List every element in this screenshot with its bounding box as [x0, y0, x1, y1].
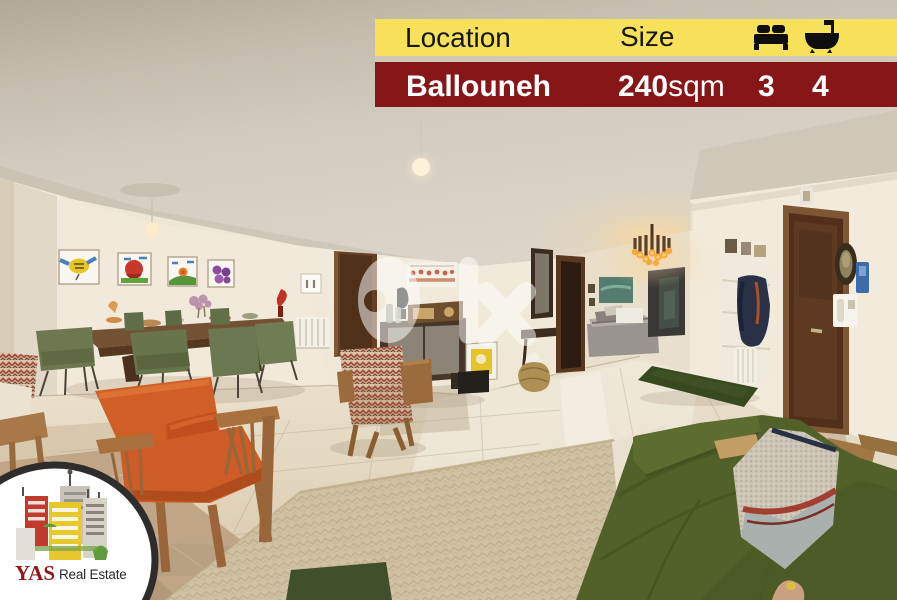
svg-text:YAS: YAS	[15, 561, 55, 585]
svg-text:3: 3	[758, 70, 775, 103]
svg-text:4: 4	[812, 70, 829, 103]
svg-text:Size: Size	[620, 21, 674, 52]
svg-text:Real Estate: Real Estate	[59, 567, 127, 582]
svg-text:Ballouneh: Ballouneh	[406, 70, 551, 103]
svg-text:Location: Location	[405, 22, 511, 53]
svg-text:240sqm: 240sqm	[618, 70, 725, 103]
